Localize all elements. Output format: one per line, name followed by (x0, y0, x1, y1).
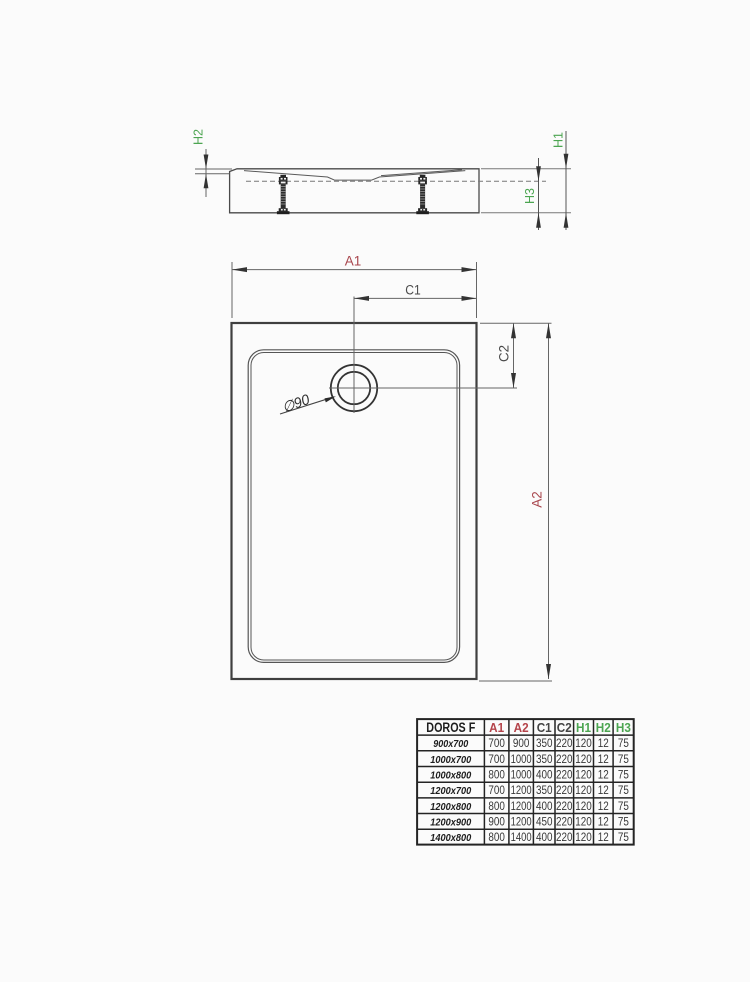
svg-text:C2: C2 (557, 720, 572, 735)
svg-text:120: 120 (575, 832, 592, 844)
svg-text:H3: H3 (522, 188, 537, 204)
svg-text:H1: H1 (551, 132, 566, 148)
svg-text:400: 400 (536, 832, 553, 844)
svg-text:800: 800 (488, 832, 505, 844)
svg-text:H1: H1 (576, 720, 591, 735)
svg-text:1200x800: 1200x800 (430, 801, 471, 813)
svg-text:A2: A2 (529, 491, 545, 508)
svg-text:1200: 1200 (511, 801, 532, 813)
svg-text:700: 700 (488, 738, 505, 750)
svg-text:120: 120 (575, 785, 592, 797)
svg-text:12: 12 (598, 785, 609, 797)
svg-text:900x700: 900x700 (433, 738, 468, 750)
svg-text:120: 120 (575, 770, 592, 782)
svg-text:900: 900 (488, 817, 505, 829)
svg-text:H2: H2 (596, 720, 611, 735)
svg-text:75: 75 (618, 801, 629, 813)
svg-text:12: 12 (598, 801, 609, 813)
svg-text:12: 12 (598, 832, 609, 844)
svg-text:800: 800 (488, 770, 505, 782)
svg-text:H2: H2 (191, 129, 206, 145)
svg-text:700: 700 (488, 785, 505, 797)
svg-text:1000x800: 1000x800 (430, 770, 471, 782)
svg-text:A2: A2 (514, 720, 529, 735)
svg-text:C2: C2 (497, 345, 512, 362)
svg-text:120: 120 (575, 738, 592, 750)
svg-text:1400x800: 1400x800 (430, 832, 471, 844)
svg-text:∅90: ∅90 (280, 392, 312, 417)
svg-text:400: 400 (536, 801, 553, 813)
svg-text:400: 400 (536, 770, 553, 782)
svg-text:A1: A1 (489, 720, 504, 735)
svg-text:12: 12 (598, 817, 609, 829)
svg-text:12: 12 (598, 738, 609, 750)
svg-text:1200x900: 1200x900 (430, 817, 471, 829)
svg-text:220: 220 (556, 785, 573, 797)
svg-text:120: 120 (575, 817, 592, 829)
svg-text:220: 220 (556, 754, 573, 766)
svg-text:75: 75 (618, 738, 629, 750)
svg-text:C1: C1 (537, 720, 552, 735)
svg-text:350: 350 (536, 754, 553, 766)
svg-text:1200: 1200 (511, 785, 532, 797)
svg-text:DOROS F: DOROS F (426, 720, 475, 735)
svg-text:1000x700: 1000x700 (430, 754, 471, 766)
svg-text:75: 75 (618, 817, 629, 829)
svg-text:220: 220 (556, 801, 573, 813)
svg-text:75: 75 (618, 754, 629, 766)
svg-text:12: 12 (598, 754, 609, 766)
svg-text:700: 700 (488, 754, 505, 766)
svg-text:1200x700: 1200x700 (430, 785, 471, 797)
svg-text:800: 800 (488, 801, 505, 813)
svg-text:220: 220 (556, 817, 573, 829)
svg-text:220: 220 (556, 832, 573, 844)
svg-text:A1: A1 (345, 253, 362, 269)
svg-text:75: 75 (618, 832, 629, 844)
svg-text:900: 900 (513, 738, 530, 750)
svg-text:1000: 1000 (511, 754, 532, 766)
svg-text:350: 350 (536, 785, 553, 797)
svg-text:220: 220 (556, 738, 573, 750)
svg-text:1200: 1200 (511, 817, 532, 829)
svg-text:450: 450 (536, 817, 553, 829)
svg-text:1000: 1000 (511, 770, 532, 782)
svg-text:350: 350 (536, 738, 553, 750)
svg-text:H3: H3 (616, 720, 631, 735)
svg-text:75: 75 (618, 770, 629, 782)
svg-text:12: 12 (598, 770, 609, 782)
svg-text:120: 120 (575, 801, 592, 813)
svg-text:1400: 1400 (511, 832, 532, 844)
svg-text:75: 75 (618, 785, 629, 797)
svg-text:120: 120 (575, 754, 592, 766)
svg-text:C1: C1 (405, 282, 421, 297)
svg-text:220: 220 (556, 770, 573, 782)
